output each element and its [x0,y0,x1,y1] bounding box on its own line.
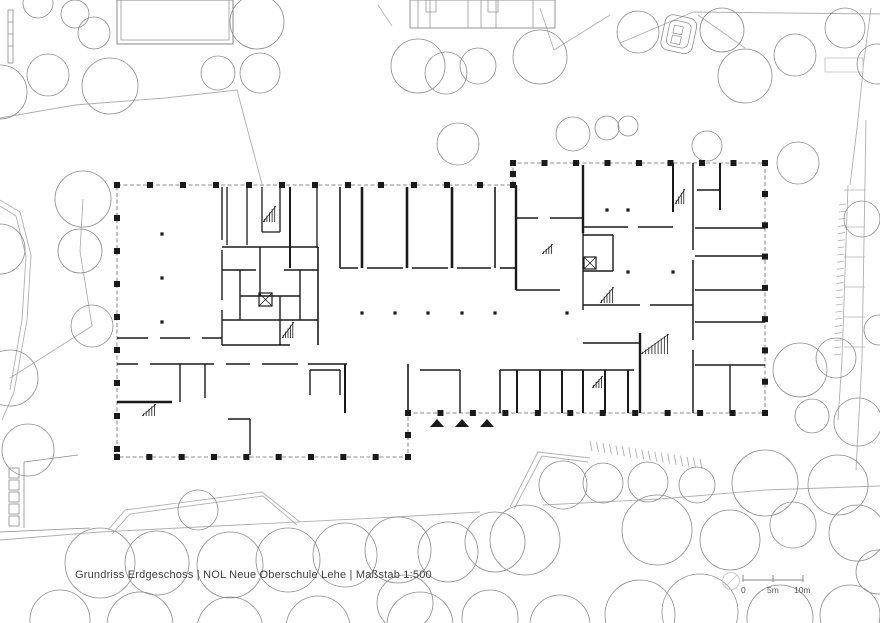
column [605,160,611,166]
tree-symbol [679,467,715,503]
column [665,410,671,416]
tree-symbol [816,338,856,378]
column [502,410,508,416]
tree-symbol [197,532,263,598]
bike-rack-tick [616,445,618,455]
path-line [554,15,610,50]
entrance-arrow [480,419,494,427]
tree-symbol [23,0,53,18]
bike-rack-tick [635,448,637,458]
playground-detail [673,25,683,35]
column [213,182,219,188]
tree-symbol [0,65,27,119]
plan-title: Grundriss Erdgeschoss | NOL Neue Obersch… [75,569,432,581]
column [444,182,450,188]
column [437,410,443,416]
column [731,160,737,166]
bike-rack-tick [590,441,592,451]
tree-symbol [556,117,590,151]
column [114,413,120,419]
hatch-tick [837,261,844,262]
column [762,160,768,166]
path-line [378,5,392,26]
path-line [0,200,31,420]
tree-symbol [700,8,744,52]
column [405,454,411,460]
hatch-tick [835,333,842,334]
hatch-tick [837,275,844,276]
scale-bar: 0 5m 10m [741,585,811,595]
tree-symbol [856,550,880,594]
column [762,379,768,385]
tree-symbol [773,343,827,397]
neighbor-detail [426,0,436,12]
hatch-tick [838,233,845,234]
annotations-layer: Grundriss Erdgeschoss | NOL Neue Obersch… [75,569,811,595]
hatch-tick [835,311,842,312]
column [510,160,516,166]
tree-symbol [256,528,320,592]
tree-symbol [387,592,453,623]
bike-rack-tick [642,449,644,459]
interior-column-dot [565,311,568,314]
playground-symbol [659,13,698,55]
tree-symbol [692,131,722,161]
tree-symbol [864,315,880,345]
interior-column-dot [160,232,163,235]
hatch-tick [838,247,845,248]
hatch-tick [838,240,845,241]
column [345,182,351,188]
tree-symbol [230,0,284,49]
path-line [0,90,237,118]
hatch-tick [836,283,843,284]
path-line [856,120,866,470]
column [567,410,573,416]
tree-symbol [774,34,816,76]
tree-symbol [622,495,692,565]
path-line [838,185,848,420]
tree-symbol [583,463,623,503]
interior-column-dot [626,270,629,273]
bike-rack-tick [694,458,696,468]
tree-symbol [82,58,138,114]
bike-rack-tick [661,453,663,463]
tree-symbol [465,512,525,572]
hatch-tick [837,268,844,269]
column [632,410,638,416]
hatch-tick [838,225,845,226]
interior-column-dot [605,208,608,211]
bike-rack-tick [681,456,683,466]
interior-column-dot [493,311,496,314]
bike-rack-tick [687,457,689,467]
tree-symbol [462,590,518,623]
parking-border [0,528,90,532]
column [179,454,185,460]
scale-ruler [743,575,803,582]
tree-symbol [662,574,738,623]
path-line [10,199,92,378]
tree-symbol [595,116,619,140]
bike-rack-tick [668,454,670,464]
path-line [237,90,262,184]
column [147,182,153,188]
neighbor-building-inner [121,0,229,40]
tree-symbol [107,592,173,623]
tree-symbol [65,528,135,598]
interior-column-dot [393,311,396,314]
column [146,454,152,460]
tree-symbol [530,595,590,623]
bike-rack-tick [674,455,676,465]
hatch-tick [836,304,843,305]
column [114,182,120,188]
parking-stall [9,516,19,526]
tree-symbol [437,123,479,165]
hatch-tick [835,318,842,319]
site-plan-svg: Grundriss Erdgeschoss | NOL Neue Obersch… [0,0,880,623]
tree-symbol [30,590,90,623]
tree-symbol [605,580,675,623]
interior-column-dot [460,311,463,314]
column [477,182,483,188]
column [373,454,379,460]
neighbor-detail [488,0,498,12]
parking-border [24,455,78,462]
column [114,248,120,254]
column [636,160,642,166]
column [470,410,476,416]
tree-symbol [829,505,880,561]
tree-symbol [425,52,467,94]
bike-rack-tick [655,452,657,462]
column [114,215,120,221]
column [542,160,548,166]
scale-label-ten: 10m [794,585,811,595]
bike-rack-tick [609,444,611,454]
column [411,182,417,188]
column [405,432,411,438]
column [762,191,768,197]
column [699,160,705,166]
path-line [112,496,297,534]
column [114,454,120,460]
hatch-tick [834,347,841,348]
column [340,454,346,460]
tree-symbol [240,53,280,93]
school-building-plan [114,160,768,460]
tree-symbol [286,596,350,623]
path-line [693,12,880,14]
floor-plan-page: Grundriss Erdgeschoss | NOL Neue Obersch… [0,0,880,623]
tree-symbol [391,39,445,93]
path-line [698,15,745,48]
parking-stall [9,492,19,502]
path-line [850,8,871,185]
hatch-tick [835,325,842,326]
column [697,410,703,416]
scale-label-zero: 0 [741,585,746,595]
column [114,347,120,353]
tree-symbol [617,11,659,53]
north-symbol [723,573,740,590]
column [573,160,579,166]
north-needle [725,575,737,587]
column [211,454,217,460]
tree-symbol [0,224,25,274]
path-line [540,8,554,50]
column [243,454,249,460]
tree-symbol [844,201,880,237]
column [114,314,120,320]
tree-symbol [178,490,218,530]
tree-symbol [539,461,587,509]
tree-symbol [27,54,69,96]
hatch-tick [839,204,846,205]
entrance-arrow [455,419,469,427]
tree-symbol [513,30,567,84]
tree-symbol [61,0,89,28]
hatch-tick [834,340,841,341]
hatch-tick [839,211,846,212]
hatch-tick [837,254,844,255]
tree-symbol [197,597,263,623]
path-line [0,206,26,390]
tree-symbol [201,56,235,90]
neighbor-building [117,0,233,44]
hatch-tick [836,297,843,298]
column [180,182,186,188]
parking-stall [9,504,19,514]
column [308,454,314,460]
tree-symbol [618,116,638,136]
column [114,446,120,452]
interior-column-dot [160,320,163,323]
interior-column-dot [626,208,629,211]
bike-rack-tick [622,446,624,456]
path-line [0,512,480,540]
tree-symbol [808,455,868,515]
column [114,380,120,386]
column [510,171,516,177]
hatch-tick [836,290,843,291]
entrance-arrow [430,419,444,427]
playground-detail [671,35,681,45]
column [378,182,384,188]
column [762,410,768,416]
tree-symbol [732,450,798,516]
interior-column-dot [426,311,429,314]
interior-column-dot [160,276,163,279]
column [276,454,282,460]
bike-rack-tick [629,447,631,457]
scale-label-five: 5m [767,585,779,595]
bike-rack-tick [596,442,598,452]
tree-symbol [700,510,760,570]
path-line [108,492,300,530]
bike-rack-tick [603,443,605,453]
tree-symbol [718,49,772,103]
tree-symbol [857,44,880,84]
hatch-tick [834,354,841,355]
tree-symbol [770,502,816,548]
tree-symbol [2,424,54,476]
tree-symbol [0,350,38,406]
strip-structure [8,10,13,63]
tree-symbol [820,585,880,623]
column [762,347,768,353]
bike-rack-tick [648,451,650,461]
tree-symbol [78,17,110,49]
tree-symbol [777,142,819,184]
column [114,281,120,287]
interior-column-dot [360,311,363,314]
tree-symbol [795,399,829,433]
column [762,316,768,322]
parking-stall [9,480,19,490]
hatch-tick [839,218,846,219]
interior-column-dot [671,270,674,273]
tree-symbol [834,398,880,446]
